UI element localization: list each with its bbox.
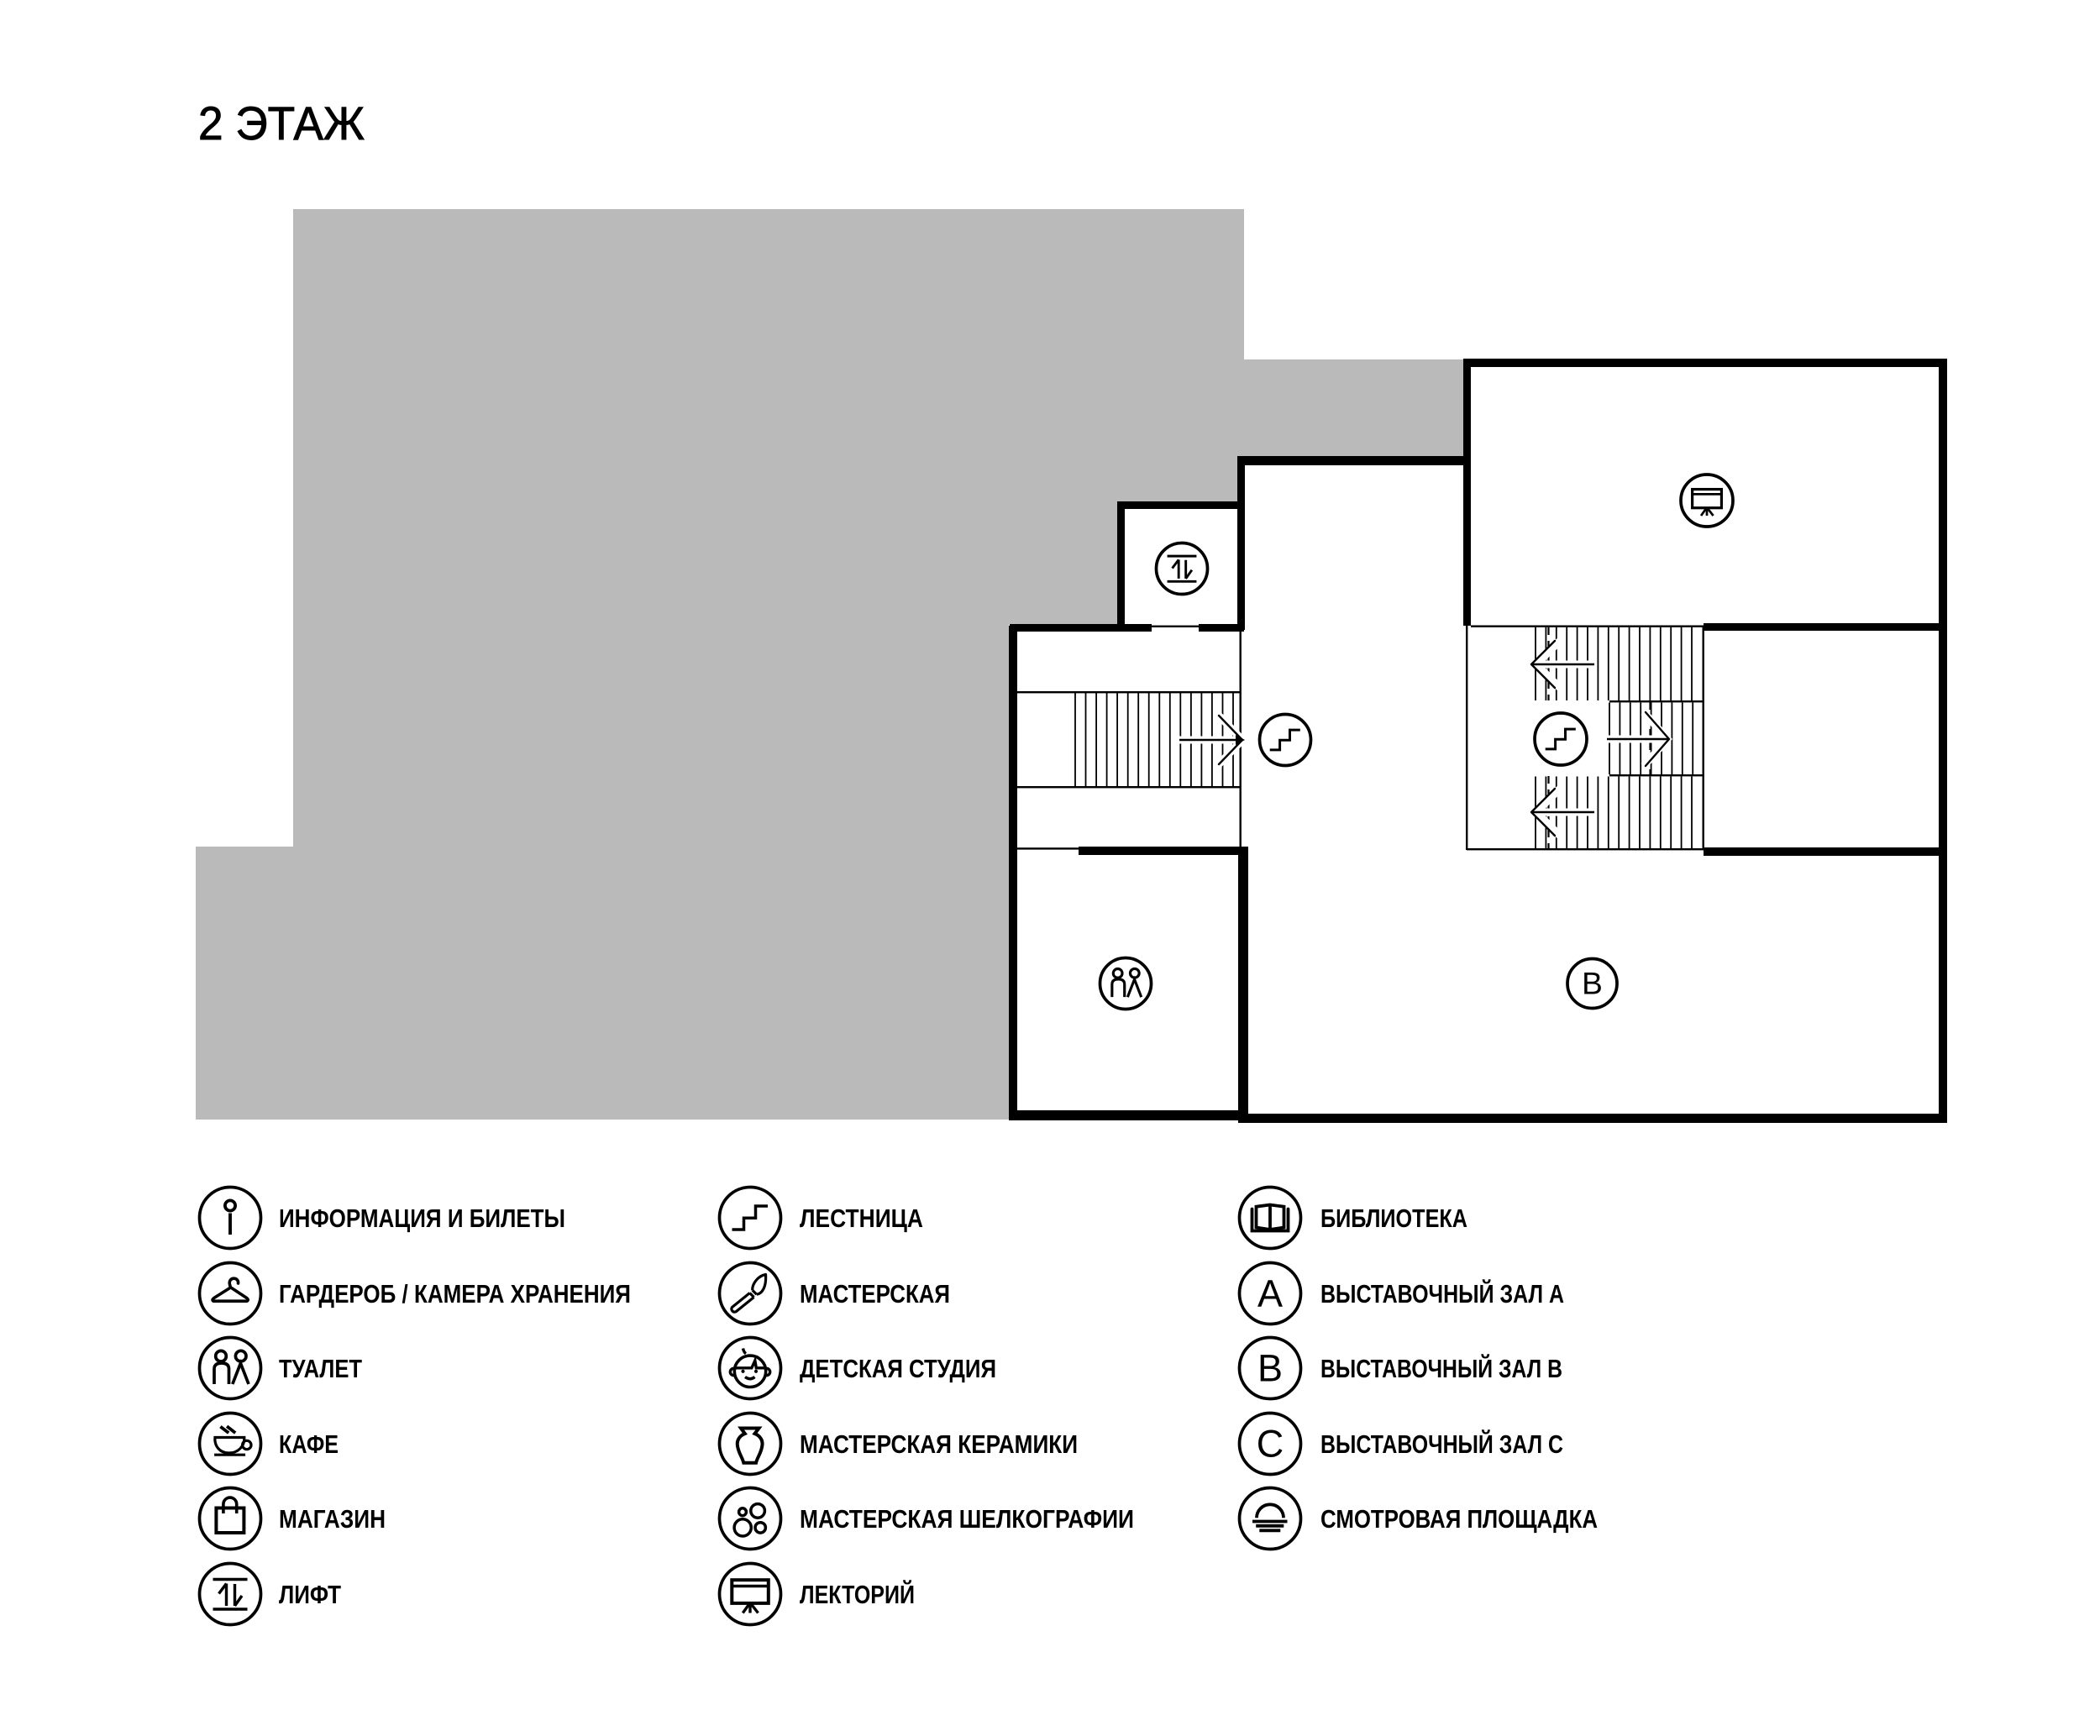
svg-text:ЛИФТ: ЛИФТ	[279, 1580, 341, 1609]
svg-text:ВЫСТАВОЧНЫЙ ЗАЛ B: ВЫСТАВОЧНЫЙ ЗАЛ B	[1320, 1353, 1562, 1383]
svg-text:2 ЭТАЖ: 2 ЭТАЖ	[198, 97, 365, 149]
svg-text:КАФЕ: КАФЕ	[279, 1429, 339, 1459]
svg-text:МАСТЕРСКАЯ: МАСТЕРСКАЯ	[800, 1279, 950, 1309]
svg-text:B: B	[1582, 967, 1603, 1001]
svg-text:ВЫСТАВОЧНЫЙ ЗАЛ A: ВЫСТАВОЧНЫЙ ЗАЛ A	[1320, 1278, 1564, 1309]
svg-text:ВЫСТАВОЧНЫЙ ЗАЛ C: ВЫСТАВОЧНЫЙ ЗАЛ C	[1320, 1429, 1563, 1459]
svg-text:C: C	[1257, 1423, 1284, 1466]
svg-text:ГАРДЕРОБ / КАМЕРА ХРАНЕНИЯ: ГАРДЕРОБ / КАМЕРА ХРАНЕНИЯ	[279, 1279, 631, 1309]
svg-text:ДЕТСКАЯ СТУДИЯ: ДЕТСКАЯ СТУДИЯ	[800, 1354, 996, 1383]
svg-text:СМОТРОВАЯ ПЛОЩАДКА: СМОТРОВАЯ ПЛОЩАДКА	[1320, 1504, 1598, 1534]
svg-text:МАГАЗИН: МАГАЗИН	[279, 1504, 386, 1534]
svg-text:ЛЕКТОРИЙ: ЛЕКТОРИЙ	[800, 1579, 915, 1609]
svg-text:МАСТЕРСКАЯ КЕРАМИКИ: МАСТЕРСКАЯ КЕРАМИКИ	[800, 1429, 1078, 1459]
svg-text:ЛЕСТНИЦА: ЛЕСТНИЦА	[800, 1204, 923, 1233]
svg-text:ТУАЛЕТ: ТУАЛЕТ	[279, 1354, 362, 1383]
svg-text:МАСТЕРСКАЯ ШЕЛКОГРАФИИ: МАСТЕРСКАЯ ШЕЛКОГРАФИИ	[800, 1504, 1134, 1534]
svg-text:БИБЛИОТЕКА: БИБЛИОТЕКА	[1320, 1204, 1467, 1233]
svg-text:A: A	[1257, 1272, 1283, 1315]
svg-text:B: B	[1257, 1347, 1283, 1390]
svg-text:ИНФОРМАЦИЯ И БИЛЕТЫ: ИНФОРМАЦИЯ И БИЛЕТЫ	[279, 1204, 565, 1233]
